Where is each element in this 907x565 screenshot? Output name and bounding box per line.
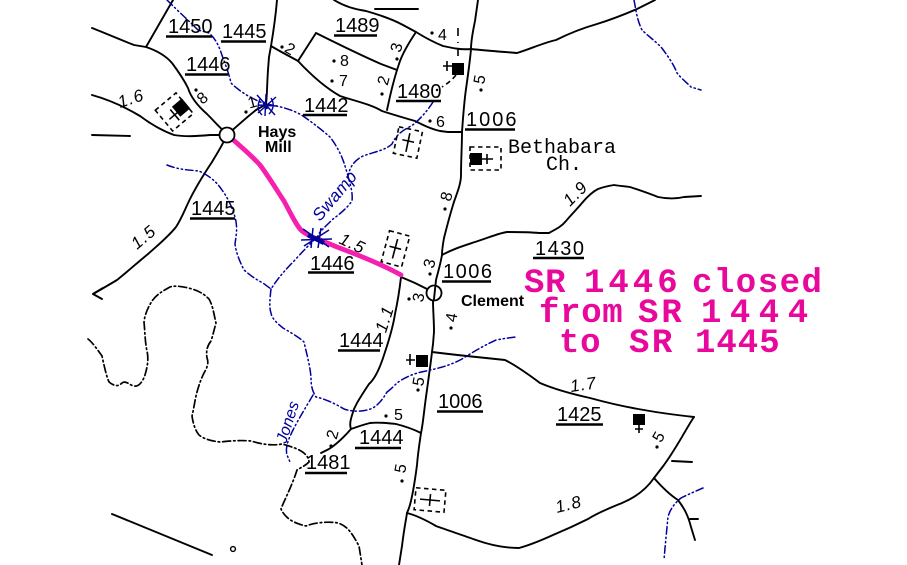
svg-text:1006: 1006 xyxy=(443,261,494,283)
svg-text:1446: 1446 xyxy=(186,54,231,76)
svg-text:4: 4 xyxy=(438,27,447,44)
svg-text:Mill: Mill xyxy=(265,139,292,156)
svg-text:1.7: 1.7 xyxy=(569,373,598,396)
svg-text:1006: 1006 xyxy=(438,391,483,413)
svg-text:5: 5 xyxy=(394,407,403,424)
svg-text:1480: 1480 xyxy=(397,81,442,103)
svg-text:6: 6 xyxy=(436,114,445,131)
svg-text:1481: 1481 xyxy=(306,452,351,474)
svg-text:toSR1445: toSR1445 xyxy=(559,325,781,363)
svg-text:1444: 1444 xyxy=(339,330,384,352)
svg-text:1442: 1442 xyxy=(304,95,349,117)
svg-text:1430: 1430 xyxy=(535,238,586,260)
svg-text:1450: 1450 xyxy=(168,16,213,38)
svg-text:1489: 1489 xyxy=(335,15,380,37)
svg-text:7: 7 xyxy=(339,73,348,90)
svg-text:1425: 1425 xyxy=(557,404,602,426)
svg-text:Clement: Clement xyxy=(461,293,525,310)
svg-text:Ch.: Ch. xyxy=(546,154,582,177)
svg-text:8: 8 xyxy=(340,53,349,70)
svg-text:1445: 1445 xyxy=(222,21,267,43)
svg-text:1445: 1445 xyxy=(191,198,236,220)
svg-text:1006: 1006 xyxy=(466,109,519,131)
svg-text:1444: 1444 xyxy=(359,427,404,449)
